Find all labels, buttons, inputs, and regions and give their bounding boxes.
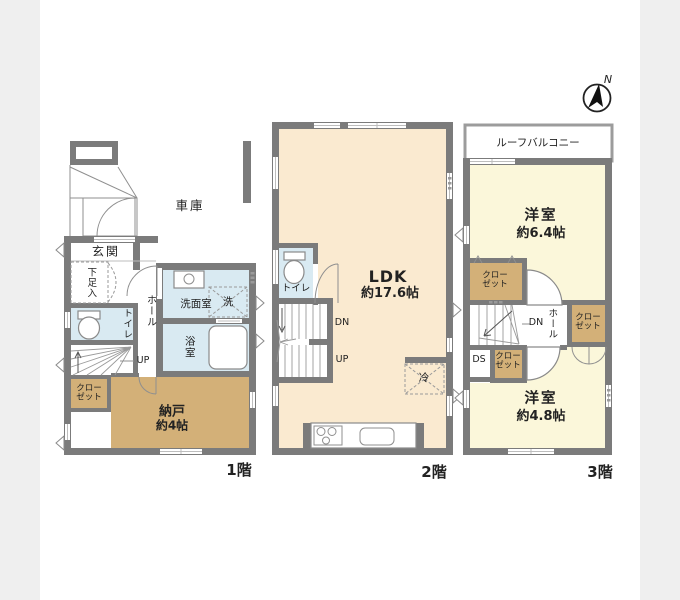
floorplan-canvas: 車庫 玄関 下足入 トイレ ホール 洗面室 洗 浴室 クロー ゼット 納戸 約4… bbox=[0, 0, 680, 600]
kitchen-counter bbox=[311, 423, 416, 448]
f1-garage-label: 車庫 bbox=[175, 199, 204, 213]
entrance-door-arc bbox=[97, 198, 135, 236]
f2-dn-label: DN bbox=[335, 318, 349, 328]
f1-bathroom-label: 浴室 bbox=[183, 336, 195, 359]
f3-closet2-label: クロー ゼット bbox=[575, 314, 601, 333]
window-mark bbox=[256, 296, 264, 310]
f1-shoe-cabinet-label: 下足入 bbox=[85, 267, 95, 299]
f3-bedroom2-size-label: 約4.8帖 bbox=[516, 410, 565, 424]
window-mark bbox=[56, 243, 64, 257]
floor2-label: 2階 bbox=[421, 464, 446, 481]
f2-ldk-label: LDK bbox=[369, 268, 408, 286]
f1-hall-label: ホール bbox=[145, 295, 156, 328]
f1-up-label: UP bbox=[137, 356, 150, 366]
f1-washer-label: 洗 bbox=[223, 297, 234, 309]
wall-size-notation bbox=[251, 272, 255, 284]
floorplan-drawing bbox=[0, 0, 680, 600]
f3-dn-label: DN bbox=[529, 318, 543, 328]
toilet-bowl bbox=[284, 261, 304, 284]
compass bbox=[584, 84, 611, 112]
f1-entrance-label: 玄関 bbox=[92, 245, 120, 258]
f3-stairs bbox=[479, 305, 530, 345]
window-mark bbox=[56, 436, 64, 450]
f3-closet1-label: クロー ゼット bbox=[482, 272, 508, 291]
f1-stairs bbox=[71, 347, 134, 375]
window-mark bbox=[455, 228, 463, 242]
entrance-approach bbox=[70, 141, 251, 236]
bathtub bbox=[209, 326, 247, 369]
floor1-label: 1階 bbox=[226, 462, 251, 479]
window-mark bbox=[56, 358, 64, 372]
f2-up-label: UP bbox=[336, 355, 349, 365]
f2-fridge-label: 冷 bbox=[419, 373, 430, 385]
compass-north-label: N bbox=[604, 74, 612, 86]
toilet-tank bbox=[284, 252, 305, 260]
window-mark bbox=[453, 303, 461, 317]
garage-side-wall bbox=[243, 141, 251, 203]
f2-ldk-size-label: 約17.6帖 bbox=[361, 287, 419, 301]
window-mark bbox=[256, 334, 264, 348]
f1-toilet-label: トイレ bbox=[121, 308, 131, 340]
washroom-door-arc bbox=[127, 266, 157, 296]
f3-closet3-label: クロー ゼット bbox=[495, 353, 521, 372]
f3-bedroom1-label: 洋室 bbox=[525, 209, 558, 225]
f3-bedroom1-size-label: 約6.4帖 bbox=[516, 227, 565, 241]
f1-closet-label: クロー ゼット bbox=[76, 385, 102, 404]
floor3-label: 3階 bbox=[587, 464, 612, 481]
f3-ds-label: DS bbox=[472, 355, 485, 365]
f2-toilet-label: トイレ bbox=[282, 284, 311, 294]
f1-storage-label: 納戸 約4帖 bbox=[156, 405, 188, 432]
wall-size-notation bbox=[448, 177, 452, 190]
f1-washroom-label: 洗面室 bbox=[180, 299, 212, 311]
f3-bedroom2-label: 洋室 bbox=[525, 392, 558, 408]
f3-roof-balcony-label: ルーフバルコニー bbox=[496, 138, 579, 150]
toilet-bowl bbox=[79, 317, 100, 339]
entrance-porch bbox=[83, 198, 137, 236]
f3-hall-label: ホール bbox=[546, 308, 556, 340]
